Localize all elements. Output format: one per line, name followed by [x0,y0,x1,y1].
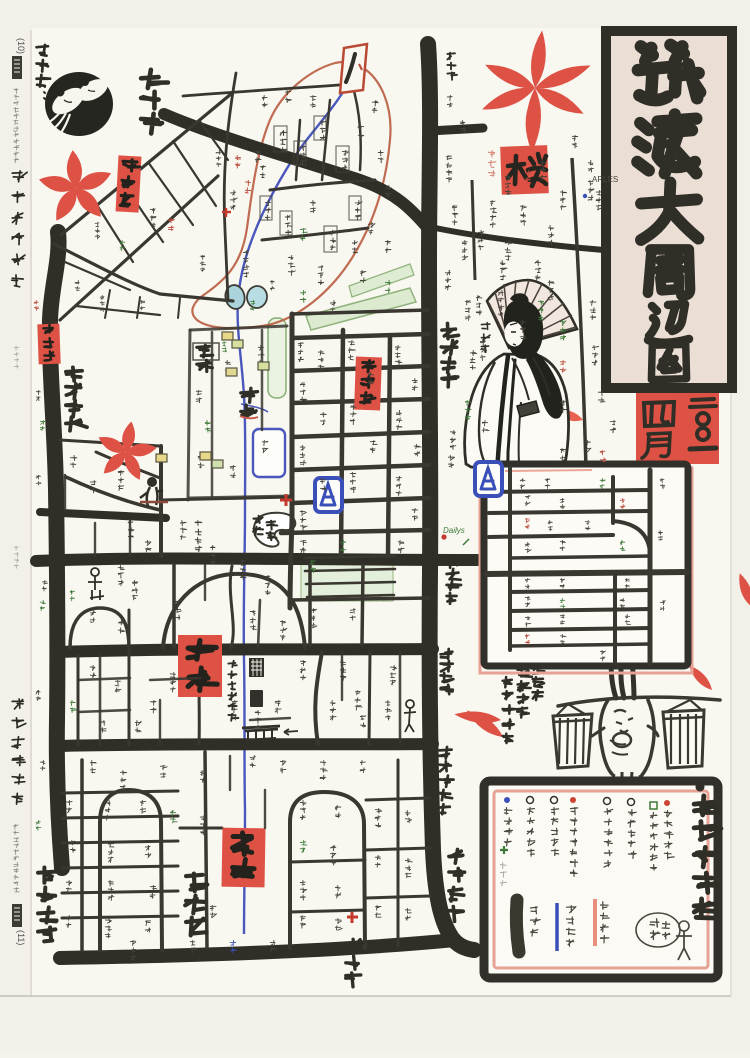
svg-text:(11): (11) [16,930,26,945]
svg-text:(10): (10) [16,38,26,54]
svg-text:ARLES: ARLES [592,175,618,184]
svg-text:Dailys: Dailys [443,526,465,535]
